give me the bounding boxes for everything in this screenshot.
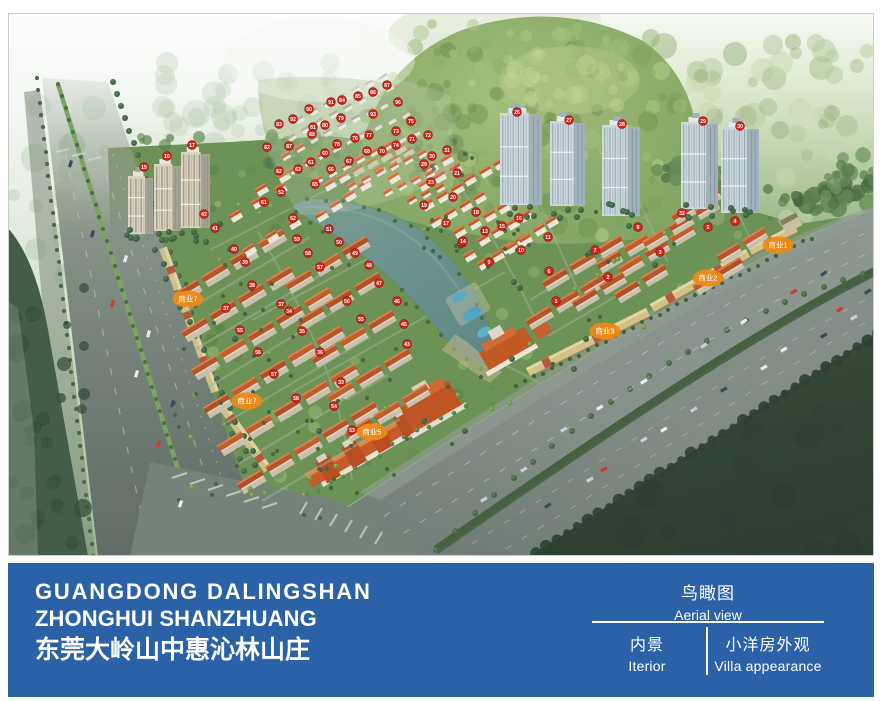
svg-text:76: 76 — [352, 136, 358, 142]
svg-text:15: 15 — [499, 224, 505, 230]
svg-text:2: 2 — [606, 275, 609, 281]
svg-text:93: 93 — [370, 112, 376, 118]
svg-text:58: 58 — [293, 396, 299, 402]
svg-text:52: 52 — [290, 216, 296, 222]
svg-text:23: 23 — [428, 180, 434, 186]
svg-text:19: 19 — [421, 203, 427, 209]
svg-text:36: 36 — [317, 350, 323, 356]
svg-text:84: 84 — [339, 98, 345, 104]
svg-text:61: 61 — [261, 200, 267, 206]
svg-text:商业3: 商业3 — [595, 326, 614, 336]
svg-text:71: 71 — [409, 137, 415, 143]
svg-text:10: 10 — [518, 248, 524, 254]
svg-text:30: 30 — [429, 154, 435, 160]
svg-text:72: 72 — [425, 133, 431, 139]
svg-text:29: 29 — [700, 119, 706, 125]
svg-text:8: 8 — [636, 225, 639, 231]
svg-text:9: 9 — [487, 260, 490, 266]
svg-text:86: 86 — [370, 90, 376, 96]
svg-text:26: 26 — [514, 110, 520, 116]
svg-text:87: 87 — [286, 144, 292, 150]
svg-text:31: 31 — [444, 148, 450, 154]
svg-text:27: 27 — [566, 118, 572, 124]
svg-text:34: 34 — [286, 309, 292, 315]
svg-text:96: 96 — [395, 100, 401, 106]
svg-text:29: 29 — [421, 162, 427, 168]
svg-text:79: 79 — [338, 116, 344, 122]
svg-text:16: 16 — [164, 154, 170, 160]
svg-text:87: 87 — [384, 83, 390, 89]
svg-text:13: 13 — [482, 229, 488, 235]
svg-text:75: 75 — [408, 119, 414, 125]
svg-text:49: 49 — [352, 251, 358, 257]
svg-text:60: 60 — [322, 151, 328, 157]
svg-text:35: 35 — [299, 329, 305, 335]
svg-text:57: 57 — [271, 372, 277, 378]
svg-text:83: 83 — [276, 122, 282, 128]
svg-text:17: 17 — [443, 221, 449, 227]
svg-text:50: 50 — [336, 240, 342, 246]
svg-text:70: 70 — [379, 149, 385, 155]
svg-text:43: 43 — [404, 342, 410, 348]
svg-text:商业5: 商业5 — [362, 427, 381, 437]
svg-text:33: 33 — [338, 380, 344, 386]
svg-text:77: 77 — [366, 133, 372, 139]
svg-text:3: 3 — [658, 250, 661, 256]
svg-text:92: 92 — [290, 117, 296, 123]
svg-text:55: 55 — [237, 328, 243, 334]
svg-text:20: 20 — [450, 195, 456, 201]
svg-text:62: 62 — [276, 169, 282, 175]
svg-text:1: 1 — [554, 299, 557, 305]
svg-text:42: 42 — [201, 212, 207, 218]
svg-text:37: 37 — [278, 302, 284, 308]
svg-text:6: 6 — [547, 269, 550, 275]
svg-text:63: 63 — [295, 167, 301, 173]
svg-text:17: 17 — [189, 143, 195, 149]
svg-text:54: 54 — [331, 404, 337, 410]
svg-text:41: 41 — [212, 226, 218, 232]
svg-text:14: 14 — [460, 239, 466, 245]
svg-text:59: 59 — [294, 237, 300, 243]
svg-text:18: 18 — [473, 210, 479, 216]
svg-text:45: 45 — [401, 322, 407, 328]
svg-text:商业1: 商业1 — [768, 240, 787, 250]
svg-text:56: 56 — [344, 299, 350, 305]
svg-text:7: 7 — [593, 248, 596, 254]
svg-text:78: 78 — [334, 142, 340, 148]
svg-text:52: 52 — [278, 190, 284, 196]
svg-text:85: 85 — [355, 94, 361, 100]
svg-text:51: 51 — [326, 227, 332, 233]
svg-text:32: 32 — [679, 211, 685, 217]
svg-text:55: 55 — [358, 317, 364, 323]
svg-text:28: 28 — [619, 122, 625, 128]
svg-text:73: 73 — [393, 129, 399, 135]
svg-text:66: 66 — [328, 167, 334, 173]
svg-text:61: 61 — [308, 160, 314, 166]
svg-text:82: 82 — [264, 145, 270, 151]
svg-text:88: 88 — [309, 132, 315, 138]
svg-text:商业2: 商业2 — [698, 273, 717, 283]
svg-text:16: 16 — [516, 216, 522, 222]
svg-text:74: 74 — [393, 143, 399, 149]
svg-text:38: 38 — [249, 283, 255, 289]
svg-text:30: 30 — [737, 124, 743, 130]
svg-text:53: 53 — [349, 428, 355, 434]
svg-text:58: 58 — [305, 251, 311, 257]
svg-text:商业7: 商业7 — [178, 294, 197, 304]
svg-text:57: 57 — [317, 265, 323, 271]
svg-text:46: 46 — [394, 299, 400, 305]
svg-text:67: 67 — [346, 159, 352, 165]
svg-text:5: 5 — [706, 225, 709, 231]
svg-text:48: 48 — [366, 263, 372, 269]
svg-text:90: 90 — [306, 107, 312, 113]
svg-text:65: 65 — [312, 182, 318, 188]
svg-text:11: 11 — [545, 235, 551, 241]
svg-text:80: 80 — [322, 123, 328, 129]
svg-text:56: 56 — [255, 350, 261, 356]
svg-text:37: 37 — [223, 306, 229, 312]
svg-text:68: 68 — [364, 149, 370, 155]
svg-text:15: 15 — [141, 165, 147, 171]
svg-text:39: 39 — [242, 260, 248, 266]
svg-text:47: 47 — [376, 281, 382, 287]
svg-text:21: 21 — [454, 171, 460, 177]
svg-text:91: 91 — [328, 100, 334, 106]
svg-text:40: 40 — [231, 247, 237, 253]
svg-text:商业7: 商业7 — [237, 396, 256, 406]
